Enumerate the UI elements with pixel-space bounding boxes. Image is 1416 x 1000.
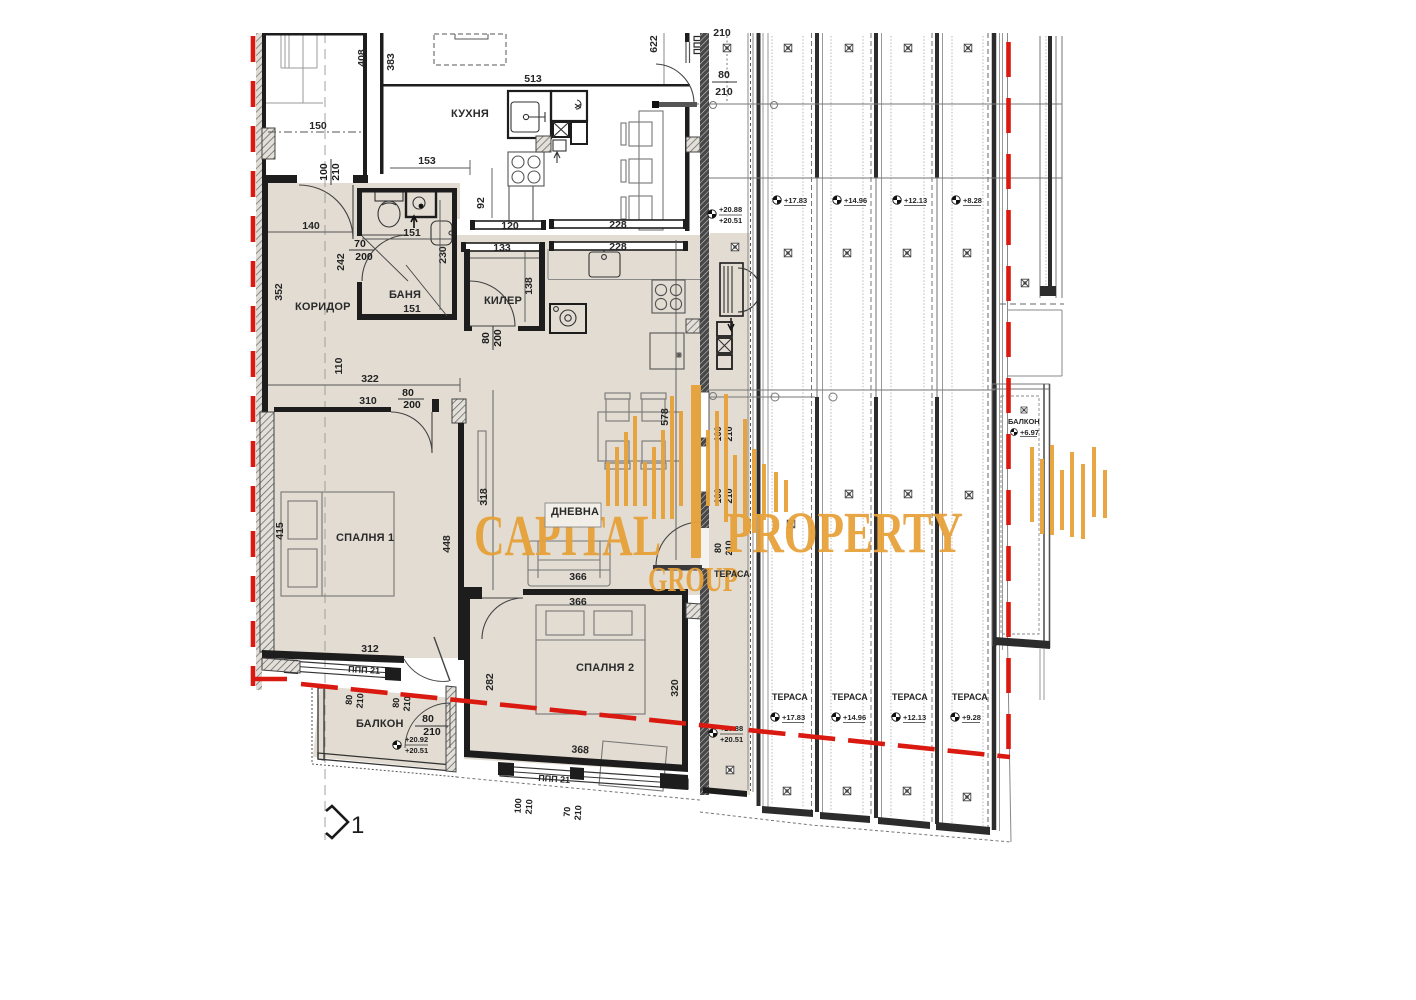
svg-text:70: 70 — [562, 806, 573, 817]
svg-text:GROUP: GROUP — [648, 560, 738, 599]
svg-text:БАНЯ: БАНЯ — [389, 289, 421, 301]
svg-text:+20.92: +20.92 — [405, 735, 428, 744]
svg-text:200: 200 — [403, 399, 421, 411]
svg-text:СПАЛНЯ 2: СПАЛНЯ 2 — [576, 662, 634, 674]
svg-text:92: 92 — [475, 197, 487, 209]
svg-text:151: 151 — [403, 303, 421, 315]
svg-text:80: 80 — [422, 713, 434, 725]
svg-text:228: 228 — [609, 219, 627, 231]
svg-text:150: 150 — [309, 120, 327, 132]
svg-text:+17.83: +17.83 — [784, 196, 807, 205]
svg-text:448: 448 — [441, 535, 453, 553]
svg-text:320: 320 — [669, 679, 681, 697]
svg-text:80: 80 — [391, 697, 402, 708]
svg-text:322: 322 — [361, 373, 379, 385]
svg-text:ТЕРАСА: ТЕРАСА — [952, 692, 988, 702]
svg-text:151: 151 — [403, 227, 421, 239]
svg-text:+12.13: +12.13 — [903, 713, 926, 722]
svg-text:+9.28: +9.28 — [962, 713, 981, 722]
svg-text:ТЕРАСА: ТЕРАСА — [714, 569, 750, 579]
svg-text:210: 210 — [330, 163, 342, 181]
svg-text:+17.83: +17.83 — [782, 713, 805, 722]
svg-text:228: 228 — [609, 241, 627, 253]
svg-text:+12.13: +12.13 — [904, 196, 927, 205]
svg-text:+6.97: +6.97 — [1020, 428, 1039, 437]
svg-text:ТЕРАСА: ТЕРАСА — [832, 692, 868, 702]
svg-text:БАЛКОН: БАЛКОН — [1008, 417, 1040, 426]
svg-text:230: 230 — [437, 246, 449, 264]
svg-text:+14.96: +14.96 — [844, 196, 867, 205]
svg-text:622: 622 — [648, 35, 660, 53]
svg-text:ТЕРАСА: ТЕРАСА — [892, 692, 928, 702]
svg-text:153: 153 — [418, 155, 436, 167]
svg-text:383: 383 — [385, 53, 397, 71]
svg-text:ТЕРАСА: ТЕРАСА — [772, 692, 808, 702]
svg-text:210: 210 — [354, 693, 365, 709]
svg-text:80: 80 — [480, 332, 492, 344]
svg-text:70: 70 — [354, 238, 366, 250]
svg-text:+20.51: +20.51 — [405, 746, 428, 755]
svg-text:110: 110 — [333, 357, 345, 374]
svg-text:282: 282 — [484, 673, 496, 691]
svg-text:1: 1 — [351, 812, 364, 839]
svg-text:КОРИДОР: КОРИДОР — [295, 301, 351, 313]
svg-text:210: 210 — [572, 805, 583, 821]
svg-text:513: 513 — [524, 73, 542, 85]
svg-text:80: 80 — [718, 69, 730, 81]
svg-text:408: 408 — [356, 49, 368, 67]
svg-text:310: 310 — [359, 395, 377, 407]
svg-text:415: 415 — [274, 522, 286, 540]
svg-text:80: 80 — [402, 387, 414, 399]
svg-text:+8.28: +8.28 — [963, 196, 982, 205]
svg-text:PROPERTY: PROPERTY — [726, 500, 963, 565]
svg-text:210: 210 — [715, 86, 733, 98]
svg-text:578: 578 — [659, 408, 671, 426]
svg-text:100: 100 — [512, 798, 523, 814]
svg-text:100: 100 — [318, 163, 330, 181]
svg-text:+20.51: +20.51 — [719, 216, 742, 225]
svg-text:+20.88: +20.88 — [719, 205, 742, 214]
svg-text:242: 242 — [335, 253, 347, 271]
svg-text:366: 366 — [569, 571, 587, 583]
svg-text:366: 366 — [569, 596, 587, 608]
svg-text:ДНЕВНА: ДНЕВНА — [551, 506, 599, 518]
svg-text:200: 200 — [355, 251, 373, 263]
svg-text:120: 120 — [501, 220, 519, 232]
svg-text:80: 80 — [713, 543, 723, 553]
svg-text:+20.51: +20.51 — [720, 735, 743, 744]
svg-text:+14.96: +14.96 — [843, 713, 866, 722]
svg-text:210: 210 — [523, 799, 534, 815]
svg-text:КИЛЕР: КИЛЕР — [484, 295, 522, 307]
svg-text:140: 140 — [302, 220, 320, 232]
svg-text:СПАЛНЯ 1: СПАЛНЯ 1 — [336, 532, 394, 544]
svg-text:БАЛКОН: БАЛКОН — [356, 718, 404, 730]
svg-text:312: 312 — [361, 643, 379, 655]
svg-text:210: 210 — [401, 696, 412, 712]
svg-text:КУХНЯ: КУХНЯ — [451, 108, 489, 120]
svg-text:368: 368 — [571, 743, 589, 756]
svg-text:ППП 21: ППП 21 — [348, 664, 380, 676]
svg-text:200: 200 — [492, 329, 504, 347]
svg-text:133: 133 — [493, 242, 511, 254]
svg-text:352: 352 — [273, 283, 285, 301]
svg-text:ППП: ППП — [692, 35, 702, 54]
svg-text:210: 210 — [713, 27, 731, 39]
svg-text:80: 80 — [344, 694, 355, 705]
